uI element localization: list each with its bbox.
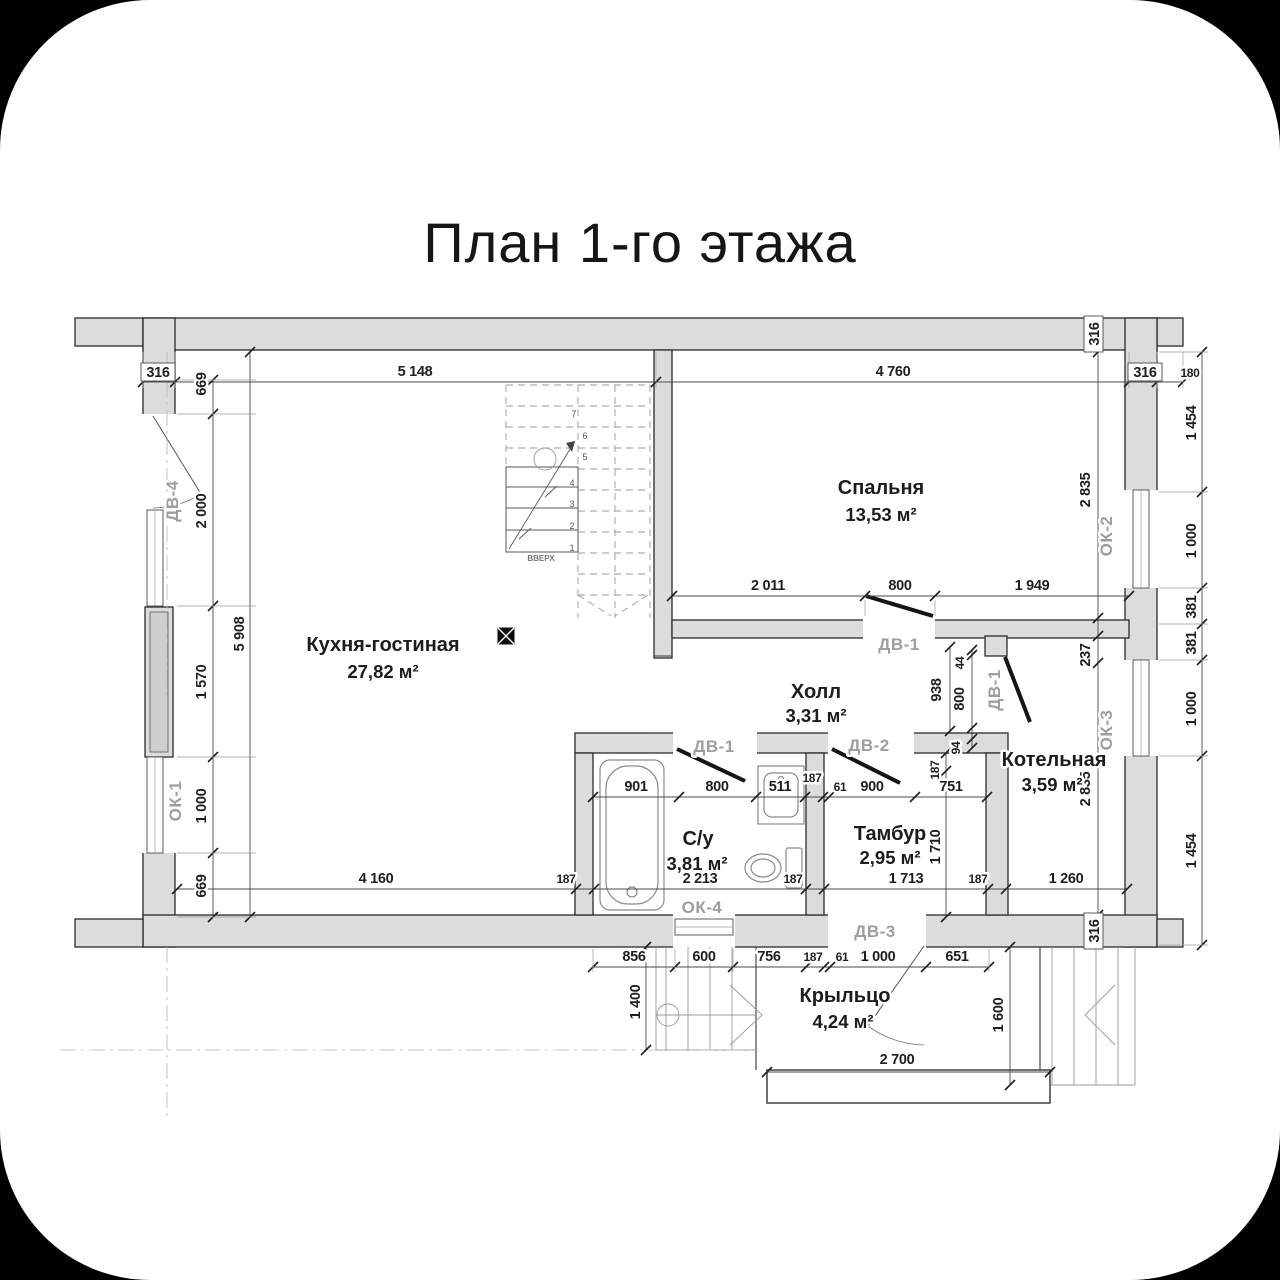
dim-label: 2 835 bbox=[1078, 472, 1094, 507]
dim-label: 180 bbox=[1180, 366, 1200, 380]
dim-label: 856 bbox=[622, 949, 646, 965]
dim-label: 44 bbox=[953, 656, 967, 669]
window-ok2 bbox=[1133, 490, 1149, 588]
svg-text:4: 4 bbox=[569, 478, 574, 488]
dim-label: 1 570 bbox=[194, 664, 210, 699]
screenshot-canvas: План 1-го этажа bbox=[0, 0, 1280, 1280]
dim-label: 511 bbox=[769, 779, 792, 795]
dim-label: 900 bbox=[860, 779, 884, 795]
door-tag-dv4: ДВ-4 bbox=[163, 480, 182, 522]
wall-kitchen-bedroom bbox=[654, 350, 672, 658]
room-area-boiler: 3,59 м² bbox=[1022, 774, 1083, 795]
wall-bath-top bbox=[575, 733, 1008, 753]
room-name-kitchen: Кухня-гостиная bbox=[306, 634, 459, 656]
svg-text:7: 7 bbox=[571, 409, 576, 419]
window-tag-ok4: ОК-4 bbox=[682, 898, 723, 917]
room-area-bathroom: 3,81 м² bbox=[667, 853, 728, 874]
svg-text:1: 1 bbox=[569, 543, 574, 553]
dim-label: 1 260 bbox=[1049, 871, 1084, 887]
dim-label: 237 bbox=[1078, 643, 1094, 667]
dim-label: 61 bbox=[836, 950, 849, 964]
dim-label: 1 454 bbox=[1184, 405, 1200, 440]
dim-label: 1 949 bbox=[1015, 578, 1050, 594]
dim-label: 1 000 bbox=[194, 788, 210, 823]
stairs-direction-label: ВВЕРХ bbox=[527, 554, 555, 563]
room-area-bedroom: 13,53 м² bbox=[845, 504, 916, 525]
window-tag-ok2: ОК-2 bbox=[1097, 516, 1116, 557]
window-ok4 bbox=[675, 919, 733, 935]
dim-label: 187 bbox=[968, 872, 988, 886]
room-name-vestibule: Тамбур bbox=[854, 823, 927, 845]
dim-label: 938 bbox=[929, 678, 945, 702]
sink bbox=[758, 766, 804, 824]
door-dv1-boiler bbox=[1005, 657, 1030, 722]
dim-label: 1 000 bbox=[1184, 523, 1200, 558]
dim-label: 316 bbox=[1087, 919, 1103, 943]
dim-label: 94 bbox=[949, 741, 963, 754]
dimension-lines bbox=[138, 347, 1208, 1090]
dim-label: 669 bbox=[194, 372, 210, 396]
dim-label: 901 bbox=[624, 779, 648, 795]
dim-label: 187 bbox=[928, 760, 942, 780]
dim-label: 4 760 bbox=[876, 364, 911, 380]
room-name-bedroom: Спальня bbox=[838, 477, 924, 499]
dim-label: 1 454 bbox=[1184, 833, 1200, 868]
wall-bath-left bbox=[575, 753, 593, 915]
porch bbox=[656, 947, 1135, 1103]
dim-label: 1 000 bbox=[1184, 691, 1200, 726]
room-area-vestibule: 2,95 м² bbox=[860, 847, 921, 868]
room-area-kitchen: 27,82 м² bbox=[347, 661, 418, 682]
dim-label: 2 000 bbox=[194, 493, 210, 528]
dim-label: 756 bbox=[757, 949, 781, 965]
dim-label: 187 bbox=[783, 872, 803, 886]
dim-label: 187 bbox=[556, 872, 576, 886]
wall-boiler-pier bbox=[985, 636, 1007, 656]
svg-text:2: 2 bbox=[569, 521, 574, 531]
door-tag-dv1: ДВ-1 bbox=[693, 737, 735, 756]
room-name-hall: Холл bbox=[791, 681, 841, 703]
dim-label: 1 713 bbox=[889, 871, 924, 887]
room-name-bathroom: С/у bbox=[682, 828, 714, 850]
svg-text:3: 3 bbox=[569, 499, 574, 509]
door-tag-dv1: ДВ-1 bbox=[985, 669, 1004, 711]
dim-label: 800 bbox=[705, 779, 729, 795]
room-name-porch: Крыльцо bbox=[799, 985, 890, 1007]
dim-label: 800 bbox=[888, 578, 912, 594]
dim-label: 5 148 bbox=[398, 364, 433, 380]
dim-label: 2 011 bbox=[751, 578, 785, 594]
dim-label: 600 bbox=[692, 949, 716, 965]
window-tag-ok3: ОК-3 bbox=[1097, 710, 1116, 751]
dim-label: 751 bbox=[939, 779, 963, 795]
dim-label: 1 000 bbox=[861, 949, 896, 965]
dim-label: 316 bbox=[146, 365, 170, 381]
door-tag-dv2: ДВ-2 bbox=[848, 736, 890, 755]
dim-label: 316 bbox=[1133, 365, 1157, 381]
dim-label: 4 160 bbox=[359, 871, 394, 887]
dim-label: 1 600 bbox=[991, 997, 1007, 1032]
dim-label: 1 710 bbox=[928, 829, 944, 864]
column-marker bbox=[498, 628, 514, 644]
dim-label: 669 bbox=[194, 874, 210, 898]
dim-label: 381 bbox=[1184, 595, 1200, 619]
door-tag-dv3: ДВ-3 bbox=[854, 922, 896, 941]
dim-label: 800 bbox=[952, 687, 968, 711]
dim-label: 61 bbox=[834, 780, 847, 794]
dim-label: 651 bbox=[945, 949, 969, 965]
floor-plan-svg: План 1-го этажа bbox=[0, 0, 1280, 1280]
room-area-porch: 4,24 м² bbox=[813, 1011, 874, 1032]
dim-label: 187 bbox=[803, 950, 823, 964]
staircase: 1 2 3 4 5 6 7 ВВЕРХ bbox=[506, 385, 650, 618]
dim-label: 1 400 bbox=[628, 984, 644, 1019]
dim-label: 2 700 bbox=[880, 1052, 915, 1068]
door-dv1-bedroom bbox=[866, 596, 933, 616]
dim-label: 381 bbox=[1184, 631, 1200, 655]
door-tag-dv1: ДВ-1 bbox=[878, 635, 920, 654]
dim-label: 316 bbox=[1087, 322, 1103, 346]
room-name-boiler: Котельная bbox=[1002, 749, 1107, 771]
room-area-hall: 3,31 м² bbox=[786, 705, 847, 726]
page-title: План 1-го этажа bbox=[423, 211, 856, 274]
window-ok3 bbox=[1133, 660, 1149, 756]
dim-label: 5 908 bbox=[232, 616, 248, 651]
svg-text:6: 6 bbox=[582, 431, 587, 441]
dim-label: 187 bbox=[802, 771, 822, 785]
window-sidelight bbox=[147, 510, 163, 606]
svg-text:5: 5 bbox=[582, 452, 587, 462]
window-tag-ok1: ОК-1 bbox=[166, 781, 185, 822]
